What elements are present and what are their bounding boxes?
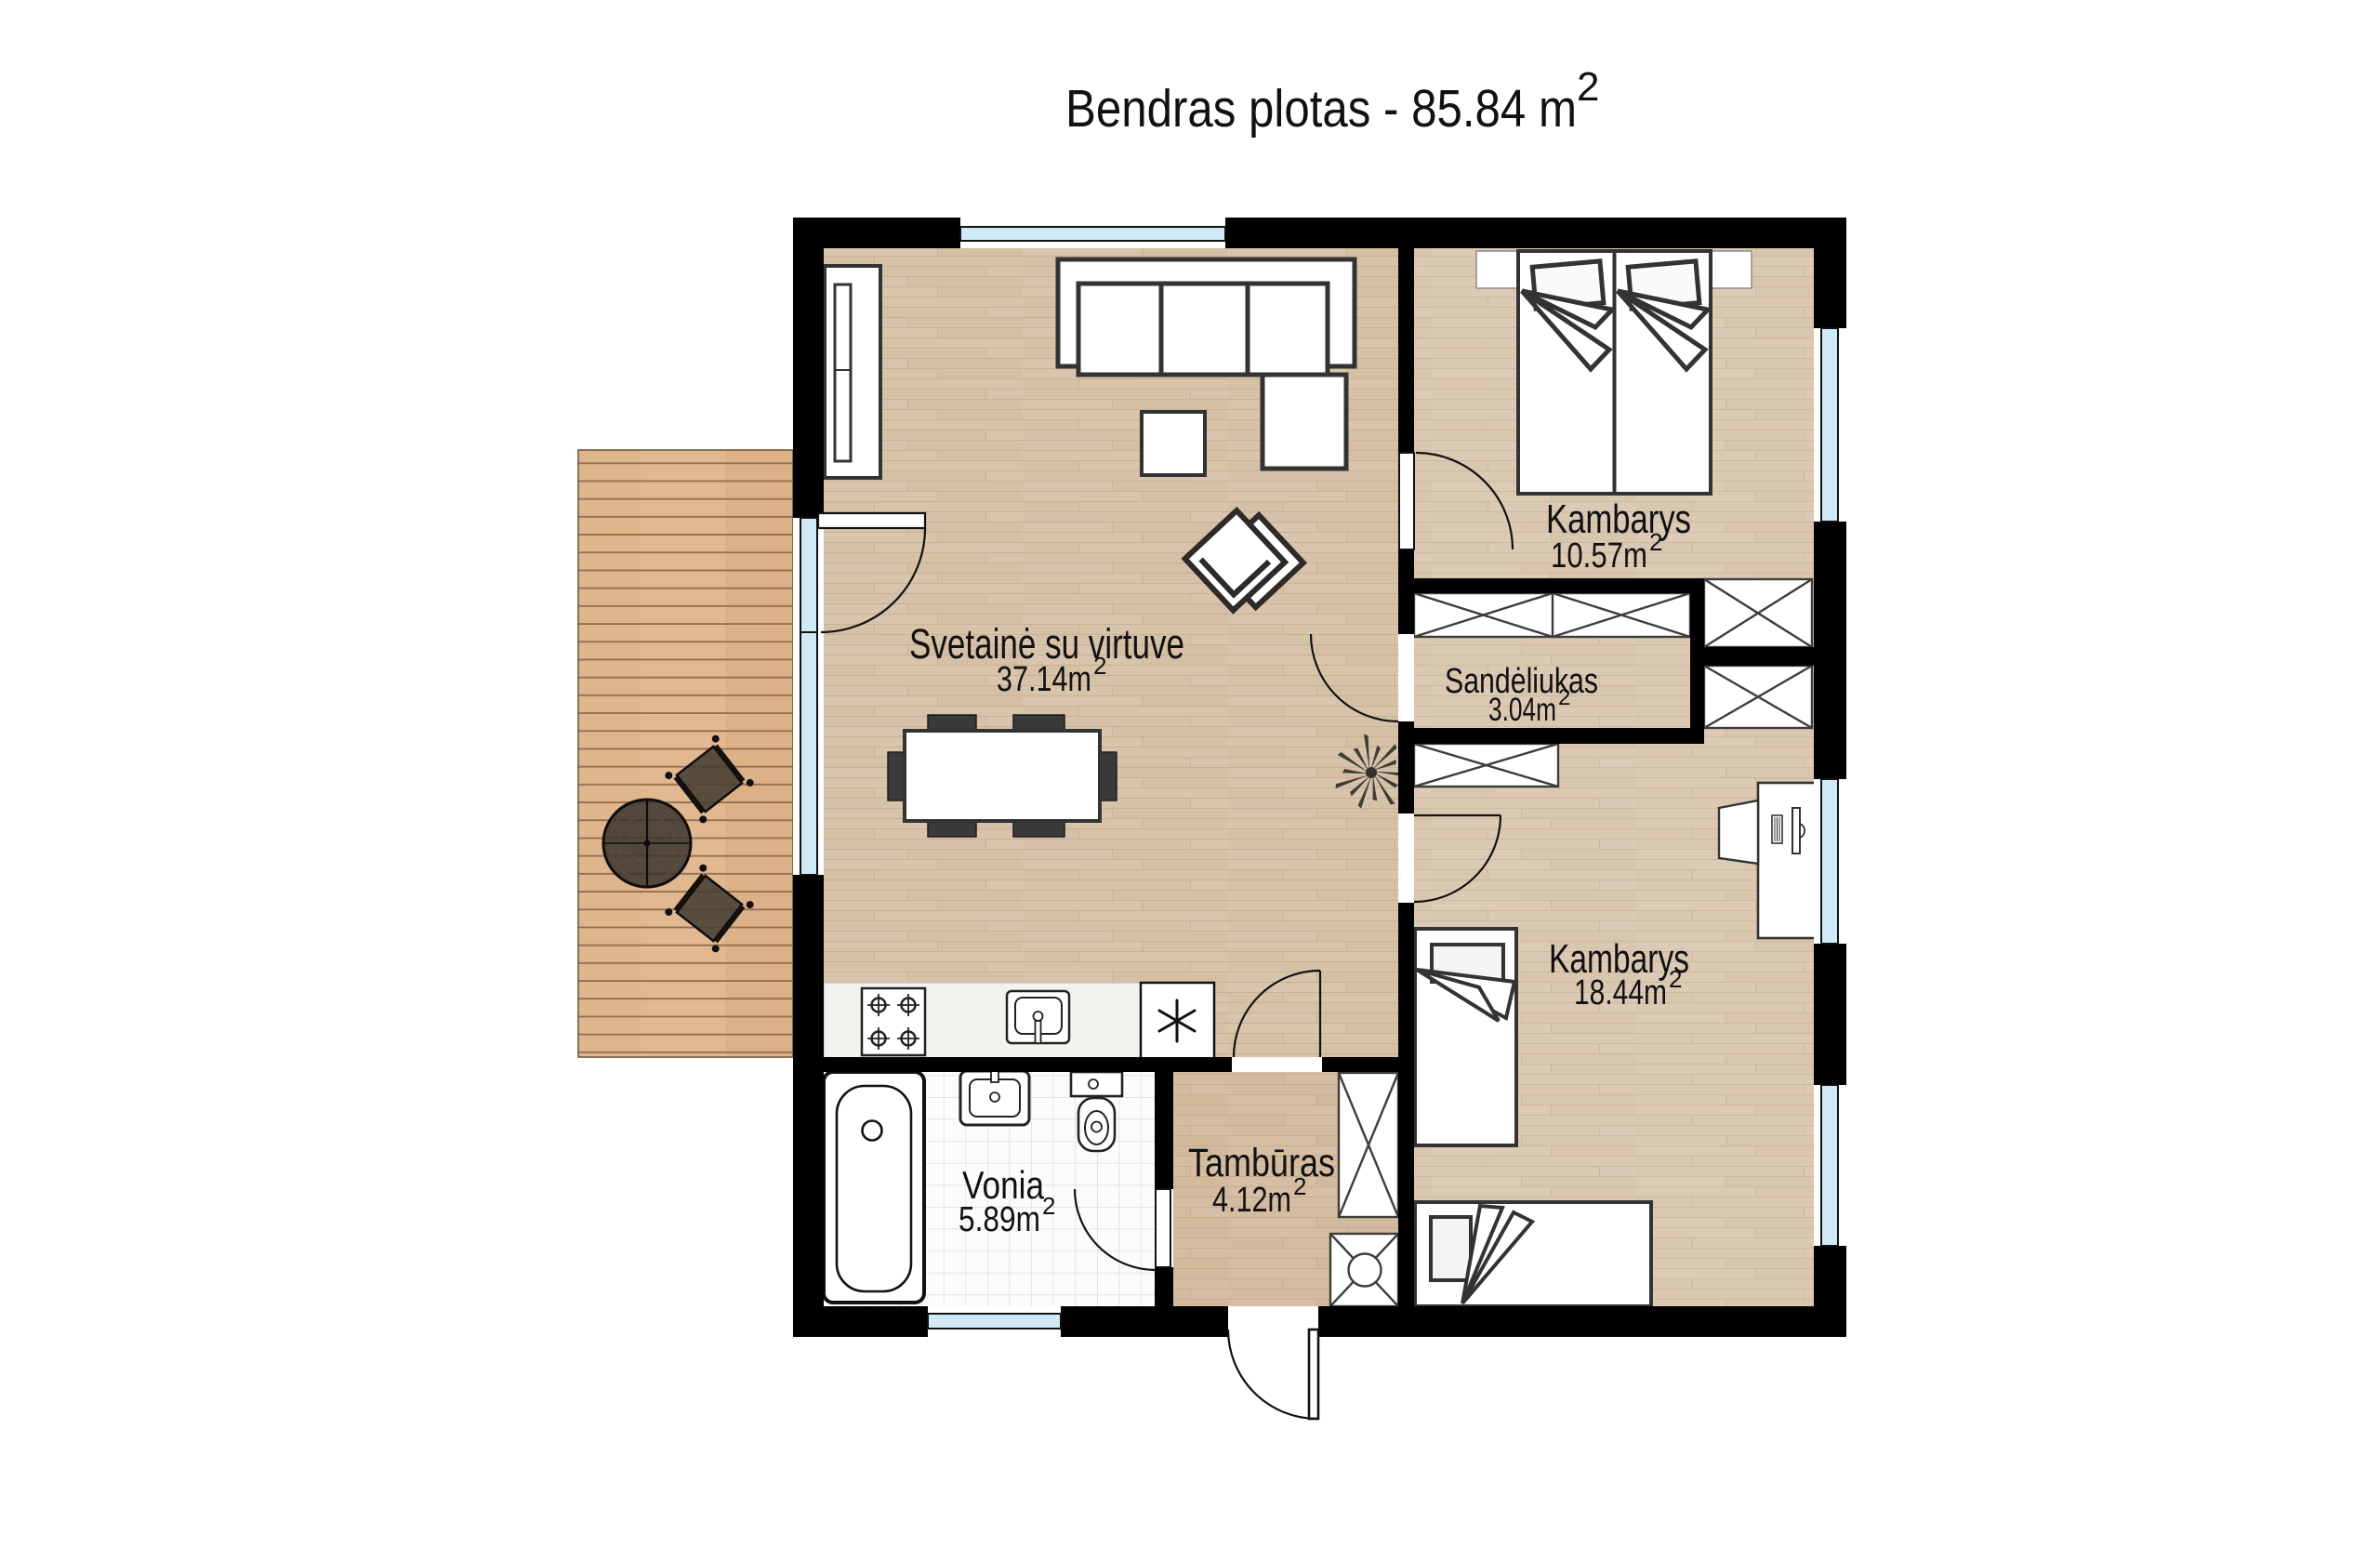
- svg-text:2: 2: [1558, 685, 1570, 710]
- svg-text:2: 2: [1093, 652, 1106, 680]
- svg-text:10.57m: 10.57m: [1551, 536, 1647, 575]
- svg-text:2: 2: [1293, 1172, 1306, 1200]
- svg-text:2: 2: [1042, 1192, 1055, 1220]
- svg-text:Kambarys: Kambarys: [1546, 496, 1691, 542]
- svg-text:4.12m: 4.12m: [1212, 1181, 1291, 1220]
- svg-text:2: 2: [1649, 528, 1662, 556]
- svg-text:Bendras plotas - 85.84 m: Bendras plotas - 85.84 m: [1065, 79, 1577, 139]
- svg-text:18.44m: 18.44m: [1574, 973, 1667, 1012]
- svg-text:Tambūras: Tambūras: [1188, 1141, 1335, 1185]
- svg-text:3.04m: 3.04m: [1488, 692, 1556, 728]
- svg-text:5.89m: 5.89m: [959, 1200, 1040, 1239]
- svg-text:37.14m: 37.14m: [997, 660, 1091, 699]
- svg-text:2: 2: [1669, 965, 1682, 993]
- svg-text:2: 2: [1577, 64, 1599, 110]
